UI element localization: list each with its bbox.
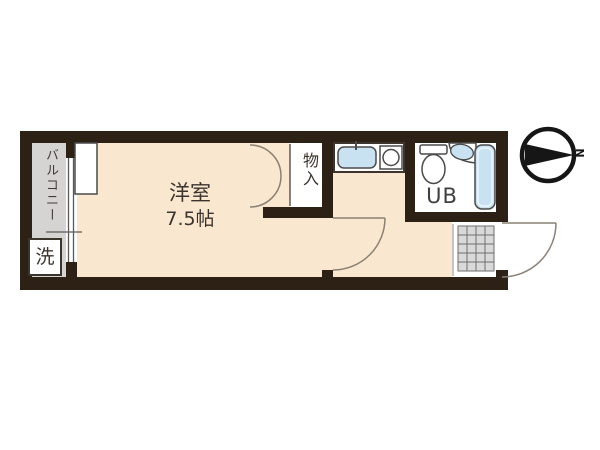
stove-burner-icon [383,150,399,166]
wall-room-east [322,143,333,218]
wall-closet-bottom [263,207,333,218]
unit-bath-label: UB [419,184,465,208]
wall-right-upper [496,131,508,222]
balcony-label: バルコニー [41,148,60,244]
floor-plan-drawing [0,0,600,450]
room-label: 洋室 [130,177,250,207]
toilet-tank [420,145,447,154]
wall-bath-bottom [405,212,508,222]
wall-room-east-stub [322,270,333,280]
window-stub-bottom [66,262,77,277]
closet-label: 物入 [297,152,321,208]
wall-bath-left [405,143,415,222]
wall-top [20,131,508,143]
entrance-door-swing [502,223,556,277]
wall-bottom [20,277,508,290]
wall-right-lower [496,270,508,290]
kitchen-sink [338,147,376,168]
washing-machine-box: 洗 [28,238,62,276]
room-size-label: 7.5帖 [130,204,250,231]
north-label: N [572,146,586,160]
toilet-icon [422,155,445,184]
pillar-box [75,143,97,194]
entrance-tile [453,224,494,276]
floor-plan: バルコニー 洗 洋室 7.5帖 物入 UB N [0,0,600,450]
compass-icon [522,129,574,181]
kitchen-counter [334,141,404,172]
